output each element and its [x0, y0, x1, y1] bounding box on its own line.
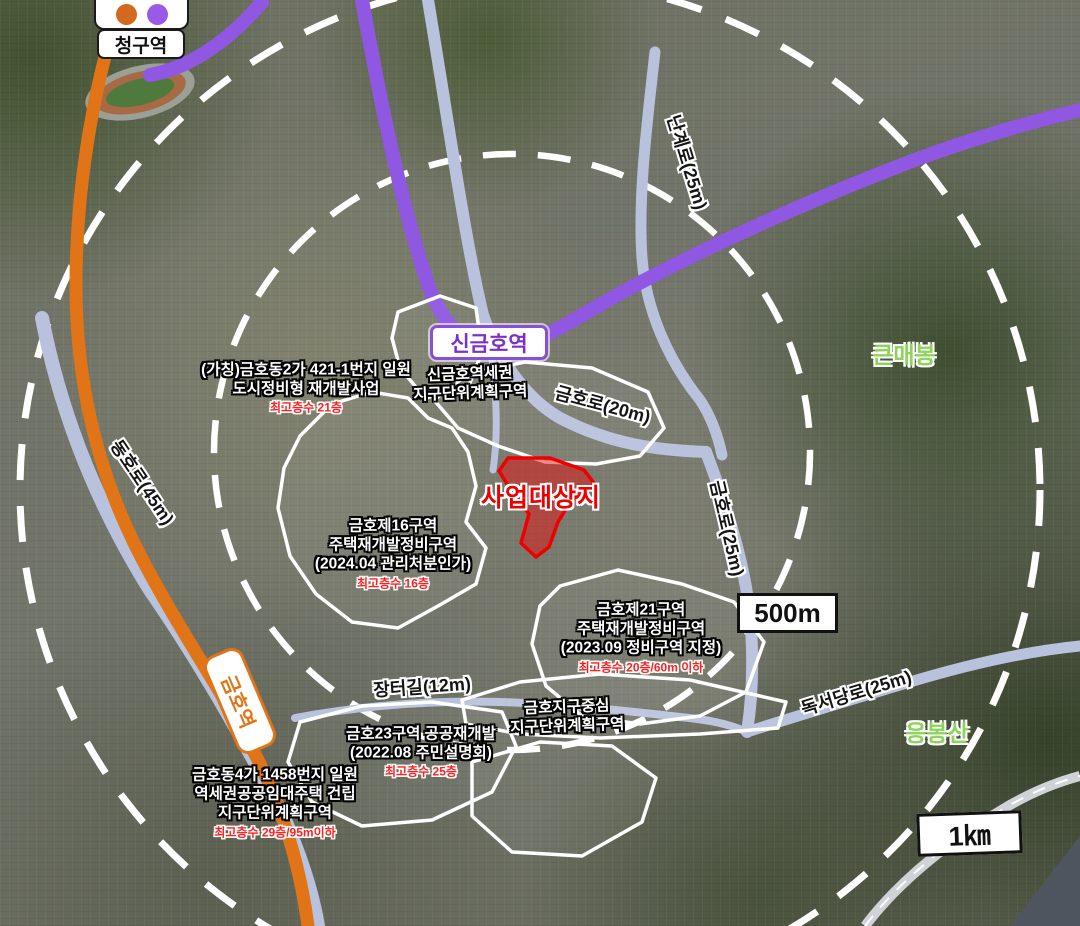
area-line: (가칭)금호동2가 421-1번지 일원 — [201, 360, 411, 379]
area-line: 금호제21구역 — [561, 601, 722, 620]
map-overlay-graphics — [0, 0, 1080, 926]
area-line: (2023.09 정비구역 지정) — [561, 639, 722, 658]
station-name: 신금호역 — [450, 328, 527, 358]
area-label-geumho21: 금호제21구역 주택재개발정비구역 (2023.09 정비구역 지정) 최고층수… — [561, 601, 722, 676]
station-label-cheonggu: 청구역 — [97, 29, 185, 59]
area-line: 금호23구역 공공재개발 — [346, 724, 496, 743]
area-label-singeumho-upz: 신금호역세권 지구단위계획구역 — [412, 363, 527, 405]
scale-value: 1㎞ — [948, 813, 991, 853]
max-floors-note: 최고층수 29층/95m이하 — [192, 825, 358, 840]
area-line: 금호동4가 1458번지 일원 — [192, 766, 358, 785]
scale-box-500m: 500m — [737, 593, 838, 633]
mountain-label-keunmaebong: 큰매봉 — [872, 336, 935, 370]
area-label-geumho4ga: 금호동4가 1458번지 일원 역세권공공임대주택 건립 지구단위계획구역 최고… — [192, 766, 358, 841]
area-line: 금호제16구역 — [315, 517, 471, 536]
area-line: (2022.08 주민설명회) — [346, 744, 496, 763]
mountain-label-eungbongsan: 응봉산 — [905, 714, 968, 748]
max-floors-note: 최고층수 16층 — [315, 576, 471, 591]
area-line: 지구단위계획구역 — [192, 804, 358, 823]
scale-box-1km: 1㎞ — [916, 810, 1022, 857]
max-floors-note: 최고층수 25층 — [346, 765, 496, 780]
area-line: 주택재개발정비구역 — [315, 536, 471, 555]
boundary-geumho16 — [278, 392, 486, 628]
station-name: 청구역 — [115, 31, 167, 58]
area-label-geumho16: 금호제16구역 주택재개발정비구역 (2024.04 관리처분인가) 최고층수 … — [315, 517, 471, 592]
max-floors-note: 최고층수 20층/60m 이하 — [561, 660, 722, 675]
max-floors-note: 최고층수 21층 — [201, 401, 411, 416]
boundary-geumho4ga — [472, 742, 656, 856]
area-line: 주택재개발정비구역 — [561, 620, 722, 639]
area-line: (2024.04 관리처분인가) — [315, 555, 471, 574]
legend-line-colors — [94, 0, 189, 30]
area-label-gachin-geumho2ga: (가칭)금호동2가 421-1번지 일원 도시정비형 재개발사업 최고층수 21… — [201, 360, 411, 415]
area-label-geumho-center-upz: 금호지구중심 지구단위계획구역 — [509, 696, 624, 738]
line5-route — [362, 0, 1080, 346]
satellite-map-canvas: 청구역 신금호역 금호역 500m 1㎞ 동호로(45m) 난계로(25m) 금… — [0, 0, 1080, 926]
line3-orange-dot-icon — [116, 4, 137, 25]
area-line: 지구단위계획구역 — [510, 715, 625, 738]
area-line: 지구단위계획구역 — [413, 382, 528, 405]
scale-value: 500m — [754, 598, 821, 629]
area-label-geumho23: 금호23구역 공공재개발 (2022.08 주민설명회) 최고층수 25층 — [346, 724, 496, 779]
station-label-singeumho: 신금호역 — [430, 325, 548, 360]
site-label: 사업대상지 — [481, 478, 601, 514]
area-line: 도시정비형 재개발사업 — [201, 380, 411, 399]
line5-purple-dot-icon — [147, 4, 168, 25]
area-line: 역세권공공임대주택 건립 — [192, 785, 358, 804]
